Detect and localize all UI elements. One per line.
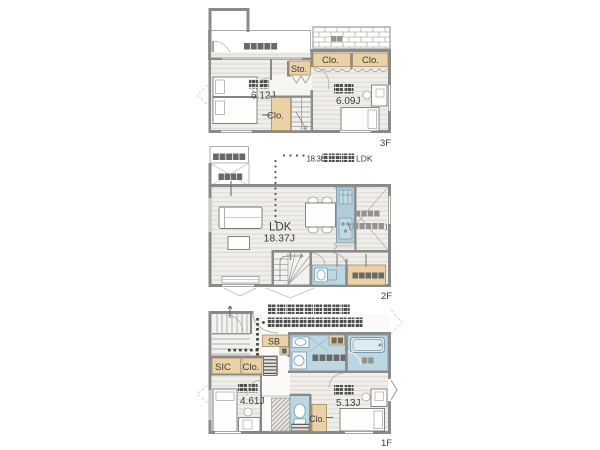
svg-text:): ) (385, 224, 387, 231)
svg-text:4.61J: 4.61J (240, 396, 264, 407)
svg-text:Clo.: Clo. (362, 55, 379, 66)
svg-text:Clo.: Clo. (243, 362, 260, 373)
svg-text:SIC: SIC (215, 362, 231, 373)
svg-text:SB: SB (268, 337, 280, 347)
svg-text:1F: 1F (381, 438, 392, 449)
svg-text:Clo.: Clo. (322, 55, 339, 66)
svg-text:6.09J: 6.09J (336, 96, 360, 107)
svg-text:5.13J: 5.13J (336, 398, 360, 409)
svg-text:3F: 3F (380, 138, 391, 149)
svg-text:LDK: LDK (356, 154, 373, 164)
svg-text:18.37J: 18.37J (264, 233, 296, 245)
svg-text:2F: 2F (381, 291, 392, 302)
svg-text:Clo.: Clo. (309, 414, 325, 424)
svg-text:Clo.: Clo. (267, 111, 284, 122)
svg-text:Sto.: Sto. (291, 64, 307, 74)
